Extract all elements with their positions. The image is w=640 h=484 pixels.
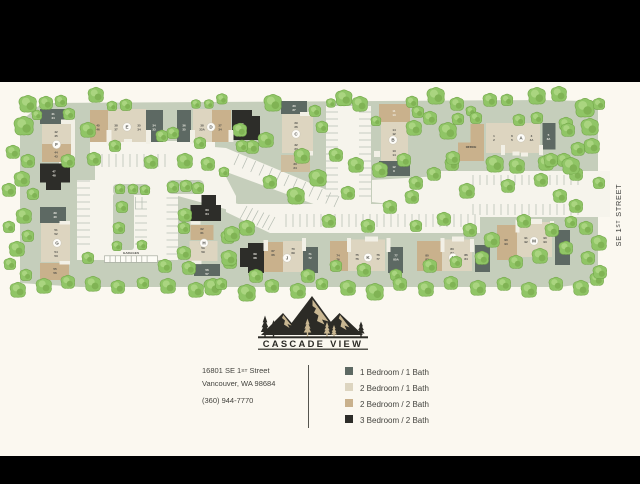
svg-text:77: 77 <box>376 257 380 261</box>
svg-text:40: 40 <box>53 215 57 219</box>
svg-text:2 Bedroom / 2 Bath: 2 Bedroom / 2 Bath <box>360 400 429 409</box>
svg-text:GARAGES: GARAGES <box>123 251 139 255</box>
svg-text:OFFICE: OFFICE <box>466 145 477 149</box>
svg-text:24: 24 <box>293 166 297 170</box>
svg-text:57: 57 <box>205 272 209 276</box>
svg-text:27: 27 <box>292 108 296 112</box>
svg-text:34: 34 <box>137 128 141 132</box>
svg-text:56: 56 <box>53 271 57 275</box>
svg-text:76: 76 <box>355 257 359 261</box>
svg-text:M: M <box>532 239 536 244</box>
svg-text:(360) 944-7770: (360) 944-7770 <box>202 396 253 405</box>
svg-text:37: 37 <box>114 128 118 132</box>
svg-text:G: G <box>55 241 59 246</box>
svg-text:68: 68 <box>253 256 257 260</box>
svg-text:43: 43 <box>54 155 58 159</box>
svg-text:E: E <box>125 125 128 130</box>
svg-text:35: 35 <box>182 128 186 132</box>
svg-text:26: 26 <box>294 125 298 129</box>
svg-text:46: 46 <box>96 128 100 132</box>
svg-text:33: 33 <box>152 128 156 132</box>
svg-text:F: F <box>55 142 58 147</box>
svg-text:33A: 33A <box>199 128 205 132</box>
svg-text:45: 45 <box>54 134 58 138</box>
svg-text:72: 72 <box>308 256 312 260</box>
svg-text:64: 64 <box>205 212 209 216</box>
svg-text:Vancouver, WA 98684: Vancouver, WA 98684 <box>202 379 275 388</box>
svg-text:59: 59 <box>201 250 205 254</box>
svg-text:SE 1ST STREET: SE 1ST STREET <box>614 184 623 247</box>
svg-text:CASCADE VIEW: CASCADE VIEW <box>263 338 364 349</box>
svg-text:12: 12 <box>392 132 396 136</box>
svg-text:93: 93 <box>543 240 547 244</box>
svg-text:1 Bedroom / 1 Bath: 1 Bedroom / 1 Bath <box>360 368 429 377</box>
svg-text:16801 SE 1ST Street: 16801 SE 1ST Street <box>202 366 270 375</box>
svg-text:92: 92 <box>524 240 528 244</box>
svg-text:69: 69 <box>291 251 295 255</box>
svg-text:52: 52 <box>54 232 58 236</box>
svg-text:66: 66 <box>271 253 275 257</box>
svg-text:3 Bedroom / 2 Bath: 3 Bedroom / 2 Bath <box>360 416 429 425</box>
svg-text:2 Bedroom / 1 Bath: 2 Bedroom / 1 Bath <box>360 384 429 393</box>
svg-text:13: 13 <box>392 113 396 117</box>
svg-text:34: 34 <box>218 128 222 132</box>
svg-text:93: 93 <box>504 242 508 246</box>
svg-text:44: 44 <box>51 116 55 120</box>
svg-text:48: 48 <box>52 174 56 178</box>
svg-text:84: 84 <box>464 257 468 261</box>
svg-text:53: 53 <box>54 254 58 258</box>
svg-text:80A: 80A <box>393 258 399 262</box>
svg-text:14: 14 <box>392 153 396 157</box>
svg-text:61: 61 <box>200 231 204 235</box>
svg-text:J: J <box>286 256 289 261</box>
